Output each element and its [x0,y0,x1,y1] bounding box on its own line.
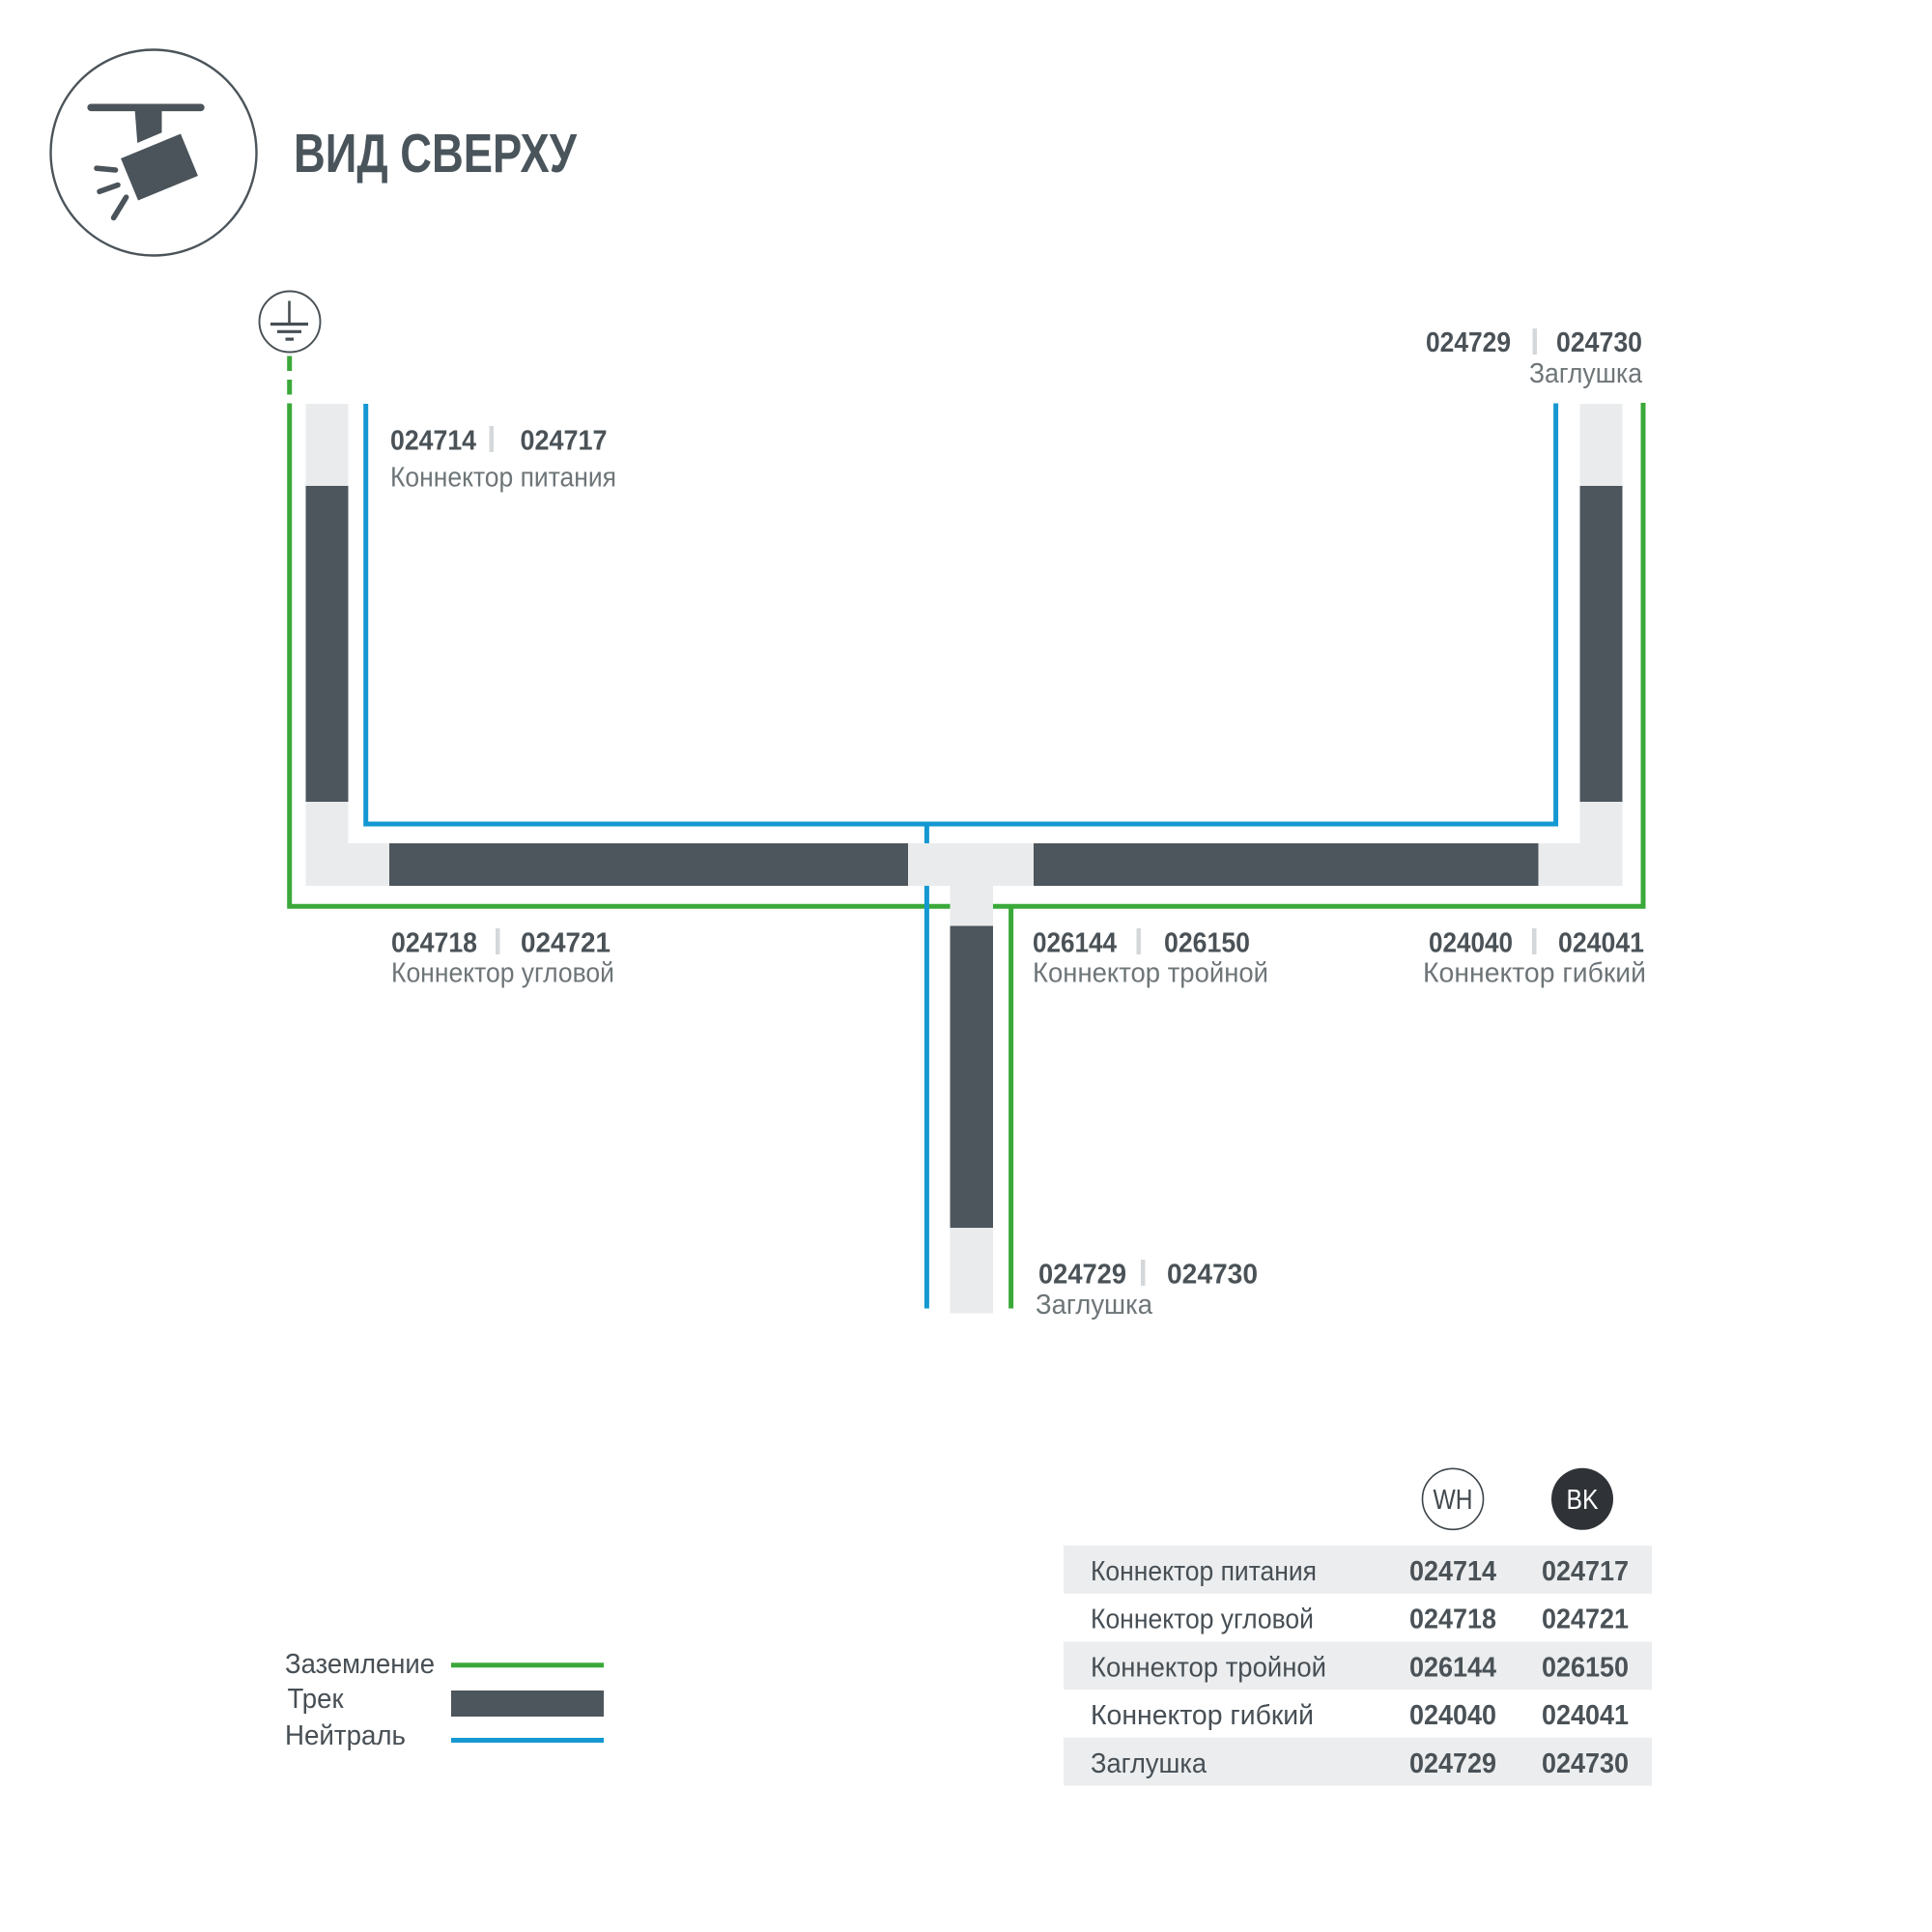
svg-text:024714: 024714 [1409,1556,1496,1587]
svg-text:024717: 024717 [1542,1556,1629,1587]
svg-text:024730: 024730 [1167,1260,1258,1291]
svg-text:ВИД СВЕРХУ: ВИД СВЕРХУ [294,123,578,184]
svg-text:BK: BK [1567,1485,1600,1516]
svg-text:Коннектор тройной: Коннектор тройной [1091,1652,1326,1683]
svg-text:Коннектор питания: Коннектор питания [1091,1556,1317,1587]
svg-text:Заглушка: Заглушка [1529,358,1643,389]
svg-text:024718: 024718 [1409,1605,1496,1635]
svg-text:024040: 024040 [1429,928,1513,959]
svg-text:024041: 024041 [1542,1700,1629,1731]
svg-text:Коннектор угловой: Коннектор угловой [1091,1605,1314,1635]
svg-text:024041: 024041 [1558,928,1644,959]
svg-text:Коннектор питания: Коннектор питания [390,463,616,494]
svg-text:024729: 024729 [1038,1260,1126,1291]
svg-text:Нейтраль: Нейтраль [285,1720,406,1751]
svg-text:Коннектор тройной: Коннектор тройной [1033,958,1268,989]
svg-text:026144: 026144 [1033,928,1117,959]
svg-text:Трек: Трек [288,1684,344,1715]
svg-text:024714: 024714 [390,426,476,457]
svg-text:Коннектор гибкий: Коннектор гибкий [1091,1700,1314,1731]
svg-text:024730: 024730 [1556,327,1642,358]
svg-text:Заглушка: Заглушка [1091,1748,1207,1779]
svg-text:026150: 026150 [1542,1652,1629,1683]
svg-text:Заглушка: Заглушка [1036,1290,1153,1321]
svg-text:026144: 026144 [1409,1652,1496,1683]
svg-text:026150: 026150 [1164,928,1250,959]
svg-text:024729: 024729 [1426,327,1511,358]
svg-text:024721: 024721 [1542,1605,1629,1635]
svg-text:024721: 024721 [521,928,611,959]
svg-text:Коннектор угловой: Коннектор угловой [391,958,614,989]
svg-text:WH: WH [1434,1485,1473,1516]
svg-text:024729: 024729 [1409,1748,1496,1779]
svg-text:024730: 024730 [1542,1748,1629,1779]
svg-text:024718: 024718 [391,928,477,959]
svg-text:024717: 024717 [521,426,608,457]
svg-text:Заземление: Заземление [285,1649,435,1680]
svg-text:024040: 024040 [1409,1700,1496,1731]
svg-text:Коннектор гибкий: Коннектор гибкий [1423,958,1646,989]
